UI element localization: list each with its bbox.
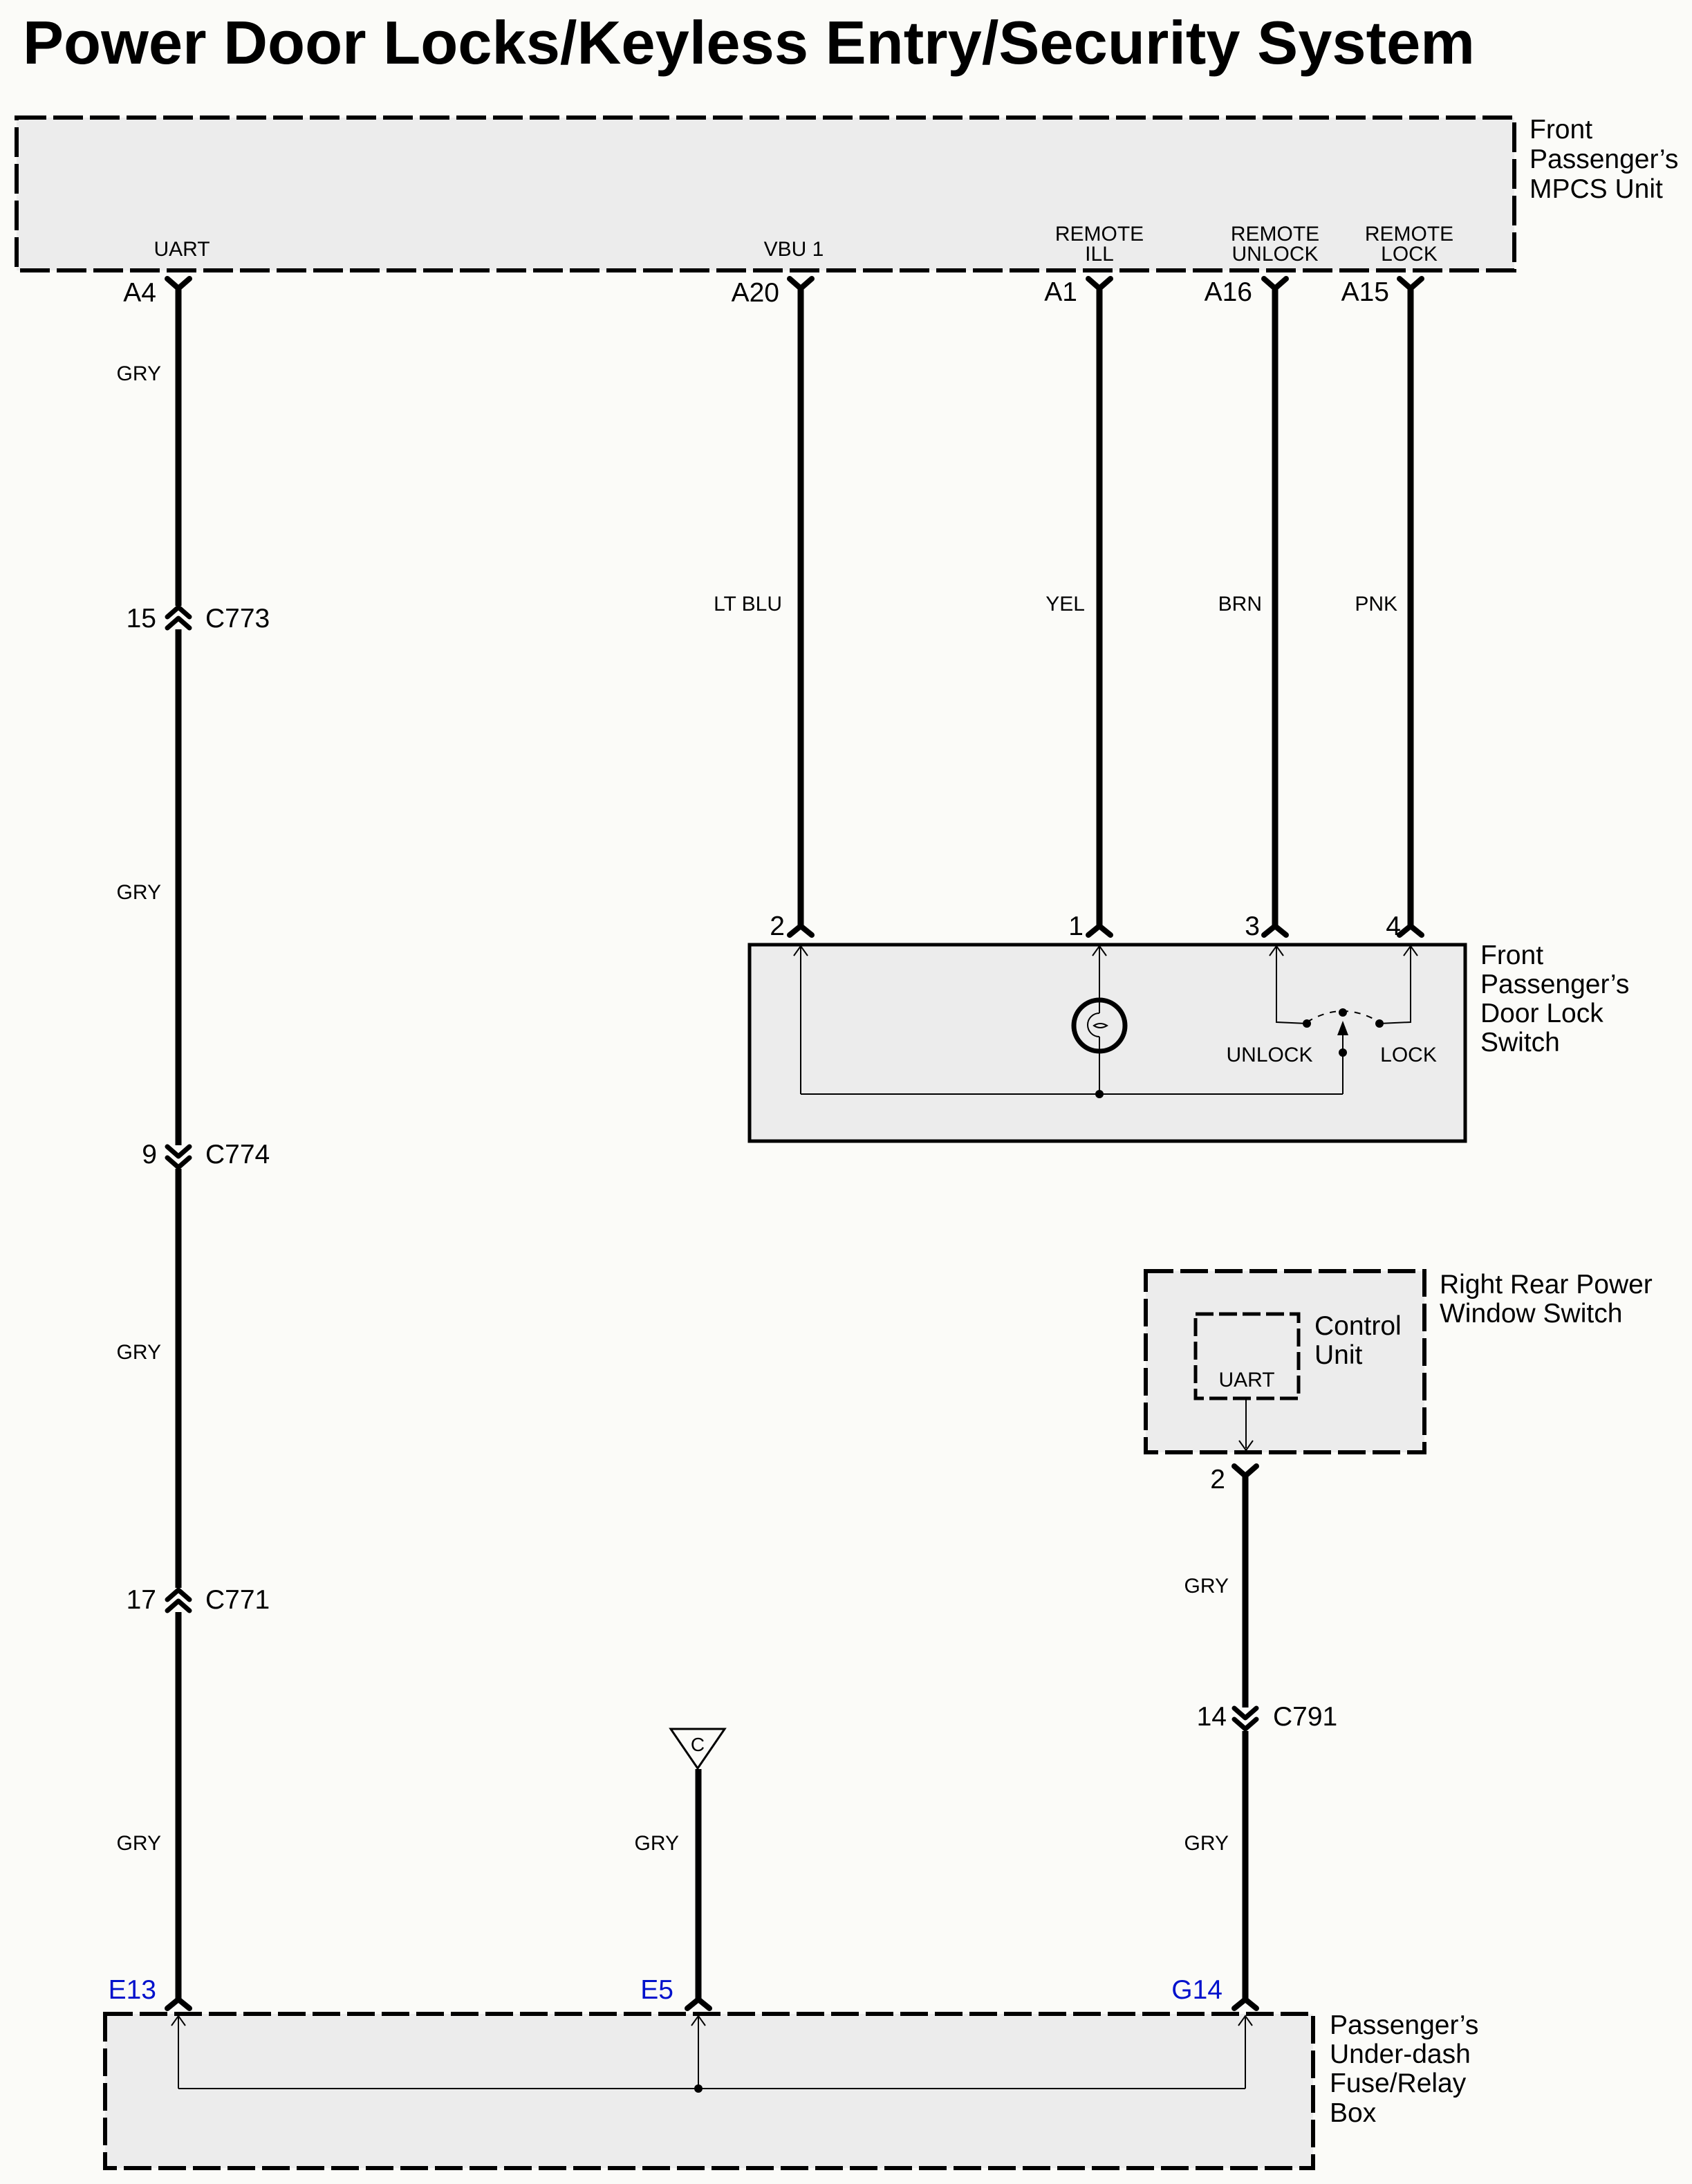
svg-text:A20: A20 bbox=[732, 278, 779, 308]
svg-text:A4: A4 bbox=[123, 278, 156, 308]
svg-text:Fuse/Relay: Fuse/Relay bbox=[1330, 2069, 1467, 2098]
svg-text:UART: UART bbox=[1218, 1369, 1274, 1391]
svg-text:Box: Box bbox=[1330, 2098, 1377, 2128]
svg-text:GRY: GRY bbox=[635, 1832, 679, 1855]
svg-text:BRN: BRN bbox=[1218, 593, 1262, 616]
svg-text:YEL: YEL bbox=[1045, 593, 1085, 616]
svg-text:14: 14 bbox=[1197, 1702, 1227, 1732]
svg-text:GRY: GRY bbox=[117, 881, 161, 904]
svg-text:G14: G14 bbox=[1171, 1975, 1222, 2005]
svg-text:E13: E13 bbox=[109, 1975, 156, 2005]
svg-text:Switch: Switch bbox=[1480, 1028, 1560, 1057]
svg-text:UNLOCK: UNLOCK bbox=[1226, 1044, 1312, 1066]
svg-text:UNLOCK: UNLOCK bbox=[1231, 243, 1318, 266]
svg-text:Right Rear Power: Right Rear Power bbox=[1440, 1270, 1653, 1299]
svg-text:A15: A15 bbox=[1341, 277, 1389, 307]
svg-text:15: 15 bbox=[127, 604, 156, 633]
svg-text:ILL: ILL bbox=[1085, 243, 1114, 266]
svg-text:1: 1 bbox=[1068, 911, 1084, 941]
svg-text:Front: Front bbox=[1480, 941, 1543, 970]
svg-text:LOCK: LOCK bbox=[1381, 243, 1438, 266]
svg-text:Passenger’s: Passenger’s bbox=[1480, 970, 1629, 999]
svg-text:GRY: GRY bbox=[1184, 1575, 1229, 1598]
svg-text:Front: Front bbox=[1530, 115, 1592, 145]
svg-text:GRY: GRY bbox=[117, 1341, 161, 1364]
svg-text:3: 3 bbox=[1245, 911, 1260, 941]
svg-text:E5: E5 bbox=[640, 1975, 673, 2005]
svg-text:4: 4 bbox=[1386, 911, 1401, 941]
svg-text:Window Switch: Window Switch bbox=[1440, 1299, 1622, 1329]
svg-text:VBU 1: VBU 1 bbox=[764, 238, 824, 261]
svg-text:PNK: PNK bbox=[1355, 593, 1397, 616]
svg-text:C771: C771 bbox=[205, 1585, 270, 1615]
svg-text:A16: A16 bbox=[1205, 277, 1252, 307]
svg-text:GRY: GRY bbox=[117, 1832, 161, 1855]
svg-text:LT BLU: LT BLU bbox=[714, 593, 782, 616]
svg-text:UART: UART bbox=[154, 238, 210, 261]
svg-text:Unit: Unit bbox=[1314, 1340, 1363, 1370]
svg-text:Control: Control bbox=[1314, 1311, 1402, 1341]
svg-text:Door Lock: Door Lock bbox=[1480, 999, 1603, 1028]
svg-text:Under-dash: Under-dash bbox=[1330, 2039, 1471, 2069]
svg-text:Passenger’s: Passenger’s bbox=[1330, 2010, 1478, 2040]
svg-text:2: 2 bbox=[1210, 1465, 1225, 1494]
svg-text:Power Door Locks/Keyless Entry: Power Door Locks/Keyless Entry/Security … bbox=[23, 8, 1475, 77]
svg-text:C773: C773 bbox=[205, 604, 270, 633]
svg-text:MPCS Unit: MPCS Unit bbox=[1530, 174, 1663, 204]
svg-text:GRY: GRY bbox=[1184, 1832, 1229, 1855]
svg-text:17: 17 bbox=[127, 1585, 156, 1615]
svg-text:Passenger’s: Passenger’s bbox=[1530, 145, 1678, 174]
svg-text:LOCK: LOCK bbox=[1380, 1044, 1437, 1066]
svg-text:A1: A1 bbox=[1044, 277, 1077, 307]
svg-text:GRY: GRY bbox=[117, 362, 161, 385]
svg-text:C774: C774 bbox=[205, 1140, 270, 1169]
svg-text:C: C bbox=[691, 1734, 705, 1755]
svg-text:9: 9 bbox=[142, 1140, 157, 1169]
svg-text:2: 2 bbox=[770, 911, 785, 941]
svg-text:C791: C791 bbox=[1273, 1702, 1337, 1732]
